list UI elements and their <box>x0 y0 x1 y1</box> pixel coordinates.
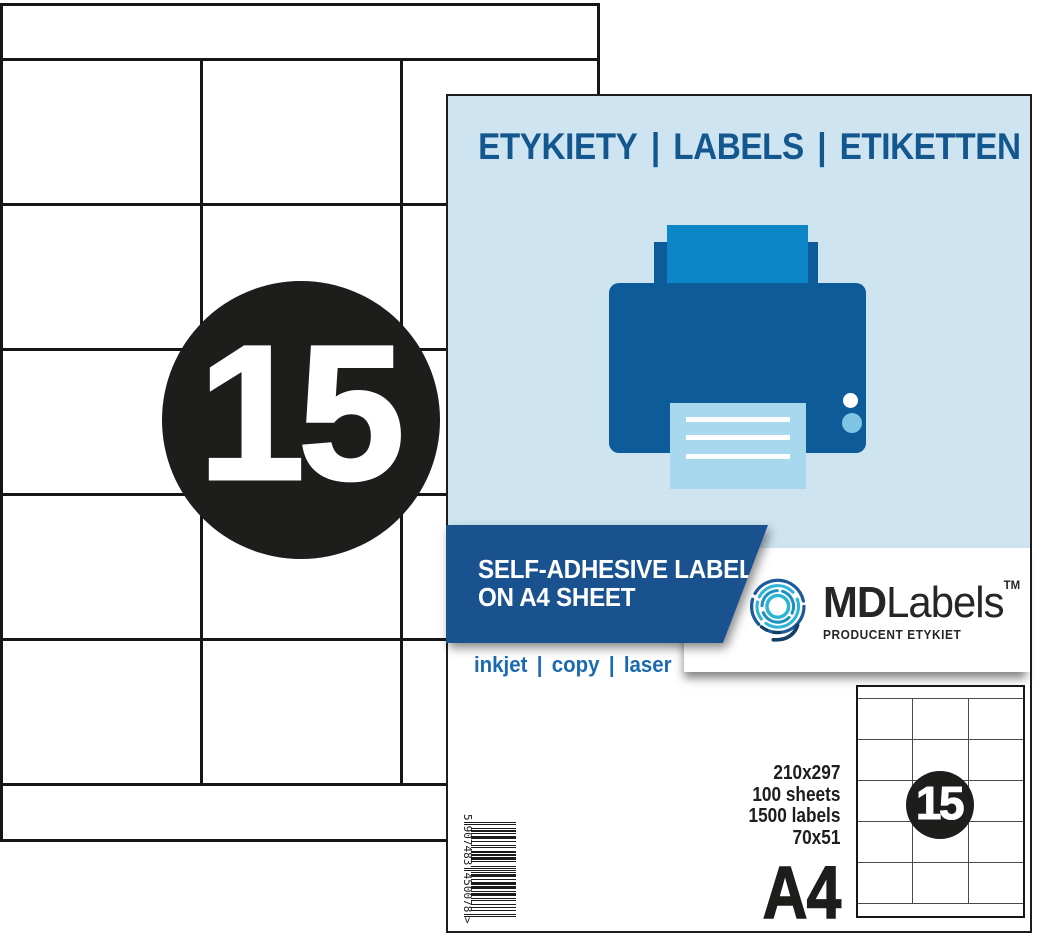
spec-sheet-size: 210x297 <box>748 762 840 784</box>
sheet-diagram: 15 <box>856 685 1025 918</box>
print-methods: inkjet|copy|laser <box>474 652 672 678</box>
spec-sheet-count: 100 sheets <box>748 784 840 806</box>
printer-paper-output <box>670 403 806 489</box>
banner-line1: SELF-ADHESIVE LABELS <box>478 555 748 583</box>
label-cell <box>858 699 913 739</box>
title-separator: | <box>817 126 826 167</box>
label-cell <box>858 781 913 821</box>
title-separator: | <box>651 126 660 167</box>
label-cell <box>203 641 403 783</box>
label-cell <box>203 61 403 203</box>
label-row <box>858 863 1023 904</box>
specs-block: 210x297 100 sheets 1500 labels 70x51 A4 <box>748 762 840 928</box>
title-word-en: LABELS <box>673 126 804 167</box>
label-cell <box>3 641 203 783</box>
printer-led-white <box>843 393 858 408</box>
label-cell <box>969 699 1023 739</box>
label-cell <box>3 206 203 348</box>
product-packshot: 15 ETYKIETY|LABELS|ETIKETTEN <box>0 0 1042 938</box>
card-top-section: ETYKIETY|LABELS|ETIKETTEN <box>448 96 1030 548</box>
methods-separator: | <box>537 652 543 677</box>
barcode-digits-left: 907483 <box>460 825 474 866</box>
label-cell <box>858 822 913 862</box>
label-cell <box>3 496 203 638</box>
barcode-digits-right: 450078 <box>460 872 474 913</box>
barcode-digit-first: 5 <box>460 814 474 821</box>
label-cell <box>913 699 968 739</box>
label-cell <box>3 61 203 203</box>
trademark-mark: TM <box>1003 578 1019 592</box>
label-count-value: 15 <box>198 317 404 523</box>
brand-tagline: PRODUCENT ETYKIET <box>823 628 1020 642</box>
barcode-quiet-mark: > <box>460 917 474 924</box>
printer-led-blue <box>842 413 862 433</box>
barcode: 5 907483 450078 > <box>460 814 516 926</box>
label-cell <box>969 863 1023 903</box>
banner: SELF-ADHESIVE LABELS ON A4 SHEET <box>446 525 768 643</box>
product-card-title: ETYKIETY|LABELS|ETIKETTEN <box>448 126 1030 168</box>
label-cell <box>913 863 968 903</box>
label-row <box>858 699 1023 740</box>
diagram-count-badge: 15 <box>906 771 974 839</box>
label-cell <box>969 740 1023 780</box>
brand-wordmark: MDLabelsTM PRODUCENT ETYKIET <box>823 579 1030 642</box>
method-laser: laser <box>624 652 672 677</box>
title-word-pl: ETYKIETY <box>478 126 637 167</box>
sheet-top-margin <box>3 6 597 61</box>
diagram-top-margin <box>858 687 1023 699</box>
product-card: ETYKIETY|LABELS|ETIKETTEN <box>446 94 1032 933</box>
spec-label-size: 70x51 <box>748 827 840 849</box>
diagram-bottom-margin <box>858 904 1023 916</box>
spec-label-count: 1500 labels <box>748 805 840 827</box>
method-inkjet: inkjet <box>474 652 527 677</box>
label-cell <box>969 822 1023 862</box>
method-copy: copy <box>552 652 600 677</box>
label-count-badge: 15 <box>162 281 440 559</box>
title-word-de: ETIKETTEN <box>840 126 1021 167</box>
format-label: A4 <box>748 858 840 928</box>
methods-separator: | <box>609 652 615 677</box>
label-cell <box>969 781 1023 821</box>
label-cell <box>858 863 913 903</box>
diagram-count-value: 15 <box>916 780 964 830</box>
label-cell <box>858 740 913 780</box>
brand-name: MDLabelsTM <box>823 579 1020 625</box>
banner-line2: ON A4 SHEET <box>478 583 748 611</box>
